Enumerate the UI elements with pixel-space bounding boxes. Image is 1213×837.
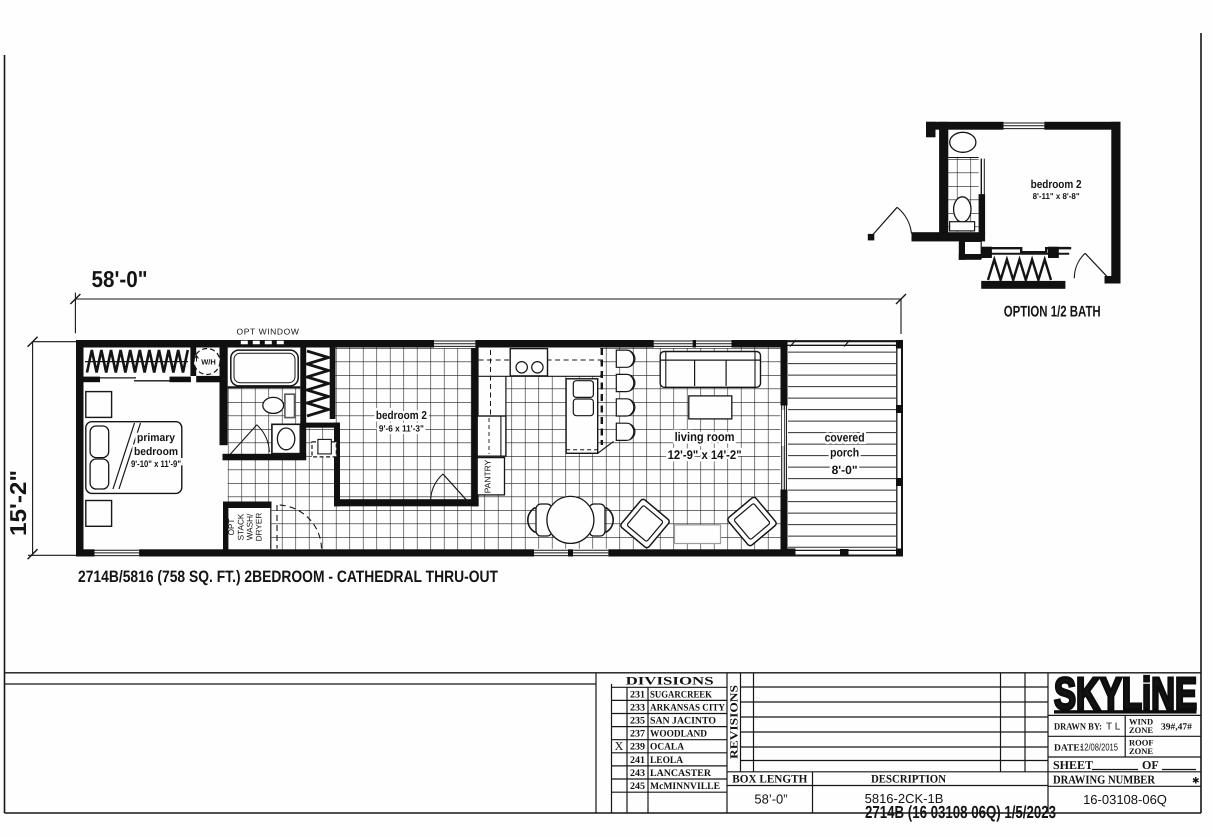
svg-text:WASH/: WASH/ bbox=[246, 513, 255, 540]
svg-text:SHEET: SHEET bbox=[1053, 758, 1093, 772]
svg-text:9'-6 x 11'-3": 9'-6 x 11'-3" bbox=[379, 423, 424, 433]
svg-text:OPTION 1/2 BATH: OPTION 1/2 BATH bbox=[1004, 303, 1101, 320]
svg-text:PANTRY: PANTRY bbox=[483, 459, 493, 493]
svg-text:ZONE: ZONE bbox=[1129, 746, 1153, 756]
svg-text:OPT: OPT bbox=[227, 519, 236, 536]
svg-text:15'-2": 15'-2" bbox=[5, 470, 31, 536]
svg-text:LANCASTER: LANCASTER bbox=[650, 768, 712, 779]
svg-text:OPT WINDOW: OPT WINDOW bbox=[237, 327, 300, 337]
svg-text:McMINNVILLE: McMINNVILLE bbox=[650, 781, 720, 792]
svg-text:living room: living room bbox=[675, 430, 735, 444]
svg-text:LEOLA: LEOLA bbox=[650, 755, 684, 766]
svg-text:DRAWING NUMBER: DRAWING NUMBER bbox=[1053, 773, 1155, 787]
svg-text:233: 233 bbox=[630, 702, 645, 713]
svg-text:covered: covered bbox=[825, 431, 865, 445]
svg-text:T L: T L bbox=[1106, 722, 1121, 733]
svg-text:BOX LENGTH: BOX LENGTH bbox=[732, 774, 807, 786]
svg-text:58’-0”: 58’-0” bbox=[754, 792, 787, 807]
svg-text:39#,47#: 39#,47# bbox=[1161, 723, 1192, 733]
svg-text:OF: OF bbox=[1142, 758, 1159, 772]
svg-text:237: 237 bbox=[630, 729, 645, 740]
svg-text:W/H: W/H bbox=[201, 358, 216, 367]
svg-text:DRYER: DRYER bbox=[255, 513, 264, 542]
svg-text:OCALA: OCALA bbox=[650, 742, 685, 753]
svg-text:ZONE: ZONE bbox=[1129, 725, 1153, 735]
svg-text:SUGARCREEK: SUGARCREEK bbox=[650, 689, 712, 700]
svg-text:9'-10" x 11'-9": 9'-10" x 11'-9" bbox=[131, 459, 181, 470]
svg-text:porch: porch bbox=[830, 446, 859, 460]
svg-text:WOODLAND: WOODLAND bbox=[650, 729, 707, 740]
svg-text:2714B/5816 (758 SQ. FT.) 2BEDR: 2714B/5816 (758 SQ. FT.) 2BEDROOM - CATH… bbox=[78, 568, 498, 586]
svg-text:8'-11" x 8'-8": 8'-11" x 8'-8" bbox=[1033, 191, 1080, 201]
svg-text:bedroom: bedroom bbox=[134, 446, 178, 458]
svg-text:bedroom 2: bedroom 2 bbox=[1031, 179, 1082, 191]
svg-text:12/08/2015: 12/08/2015 bbox=[1080, 743, 1118, 754]
svg-text:primary: primary bbox=[137, 432, 176, 444]
svg-text:241: 241 bbox=[630, 755, 645, 766]
svg-text:239: 239 bbox=[630, 742, 645, 753]
svg-text:8'-0": 8'-0" bbox=[832, 463, 858, 477]
svg-text:X: X bbox=[615, 739, 624, 753]
svg-text:✱: ✱ bbox=[1192, 776, 1200, 786]
svg-text:STACK: STACK bbox=[237, 513, 246, 540]
svg-text:243: 243 bbox=[630, 768, 645, 779]
svg-text:245: 245 bbox=[630, 781, 645, 792]
svg-text:2714B (16 03108 06Q) 1/5/202: 2714B (16 03108 06Q) 1/5/2023 bbox=[865, 802, 1056, 822]
svg-text:16-03108-06Q: 16-03108-06Q bbox=[1083, 792, 1167, 807]
svg-text:DATE:: DATE: bbox=[1054, 744, 1083, 754]
svg-text:REVISIONS: REVISIONS bbox=[729, 685, 741, 759]
svg-text:231: 231 bbox=[630, 689, 645, 700]
svg-text:12'-9" x 14'-2": 12'-9" x 14'-2" bbox=[668, 448, 742, 462]
svg-text:DRAWN BY:: DRAWN BY: bbox=[1054, 723, 1102, 733]
svg-text:bedroom 2: bedroom 2 bbox=[376, 410, 427, 422]
svg-text:SAN JACINTO: SAN JACINTO bbox=[650, 716, 716, 727]
svg-text:DESCRIPTION: DESCRIPTION bbox=[871, 774, 947, 786]
svg-text:DIVISIONS: DIVISIONS bbox=[626, 676, 714, 688]
svg-text:58'-0": 58'-0" bbox=[92, 266, 148, 292]
svg-text:ARKANSAS CITY: ARKANSAS CITY bbox=[650, 702, 726, 713]
svg-text:235: 235 bbox=[630, 716, 645, 727]
